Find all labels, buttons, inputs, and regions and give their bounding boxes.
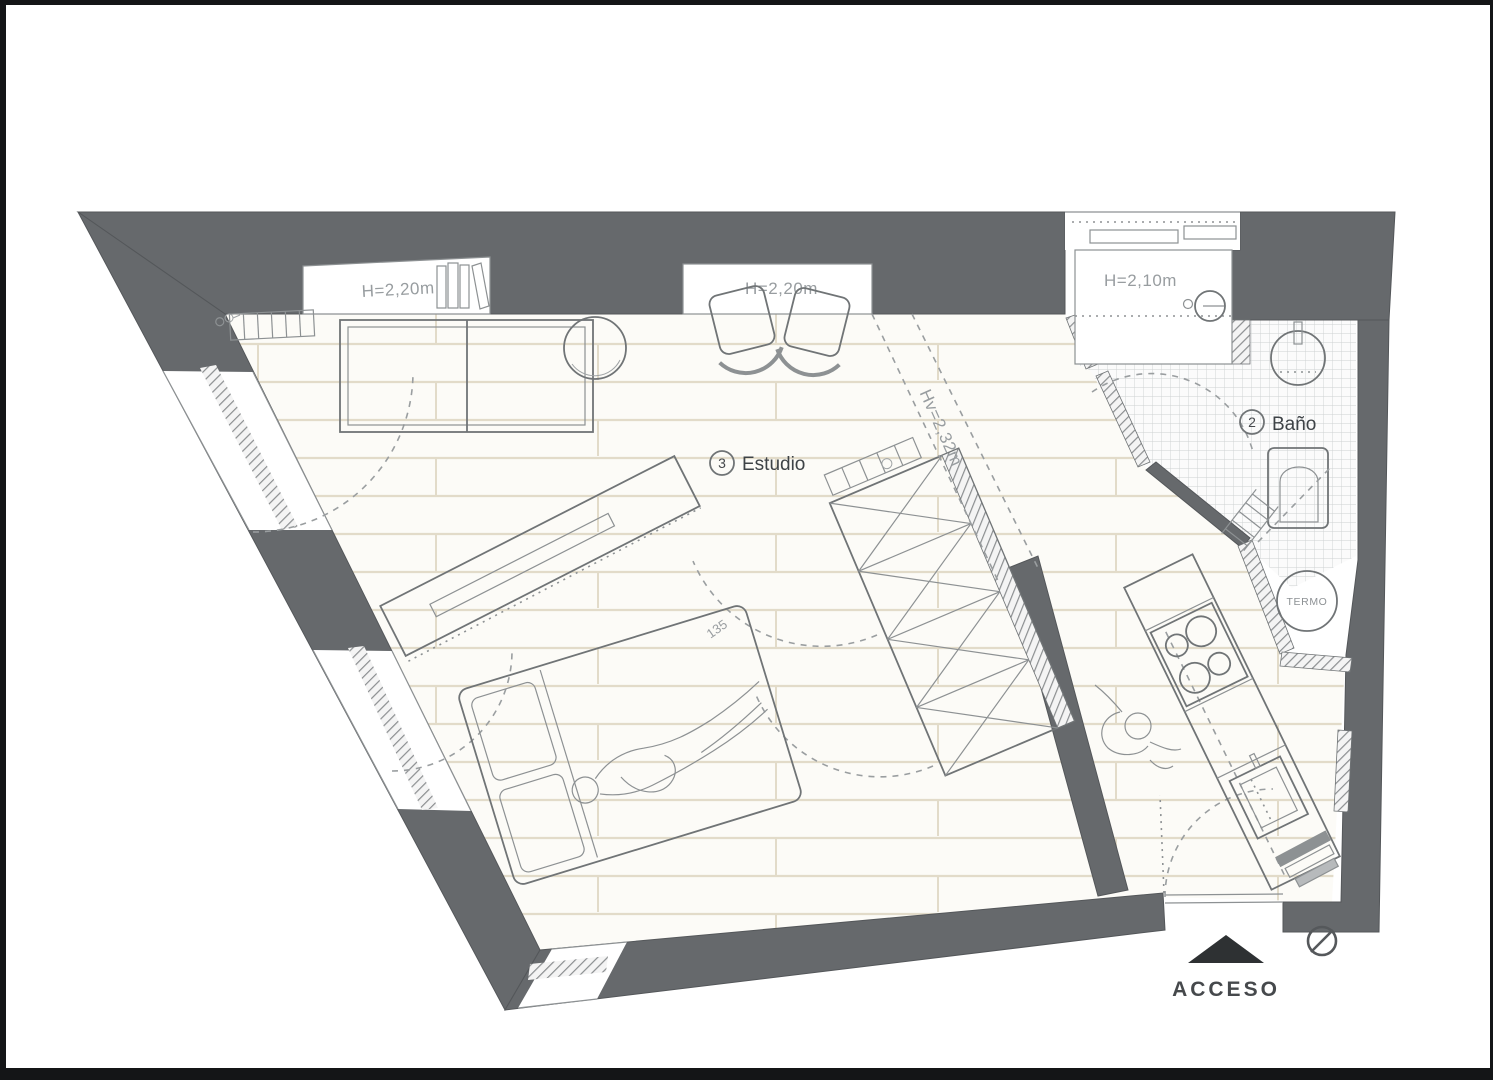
- storage-room: H=2,10m: [1075, 250, 1232, 364]
- wall-laundry-bath-hatched: [1232, 320, 1250, 364]
- floor-plan-page: H=2,20m H=2,20m H=2,10m: [0, 0, 1493, 1080]
- studio-number: 3: [718, 455, 726, 471]
- access-label: ACCESO: [1172, 978, 1280, 1001]
- storage-room-floor: [1075, 250, 1232, 364]
- wall-top-right: [1232, 212, 1395, 320]
- frame-left: [0, 0, 6, 1080]
- wall-top: [78, 212, 1065, 314]
- bathroom-number: 2: [1248, 414, 1256, 430]
- studio-name: Estudio: [742, 454, 805, 475]
- storage-height-label: H=2,10m: [1104, 271, 1177, 290]
- shelf-height-label: H=2,20m: [361, 278, 435, 301]
- bathroom-name: Baño: [1272, 414, 1316, 435]
- water-heater-label: TERMO: [1287, 596, 1328, 608]
- top-window: [1065, 212, 1240, 250]
- frame-bottom: [0, 1068, 1493, 1080]
- frame-top: [0, 0, 1493, 5]
- floor-plan-drawing: H=2,20m H=2,20m H=2,10m: [0, 0, 1493, 1080]
